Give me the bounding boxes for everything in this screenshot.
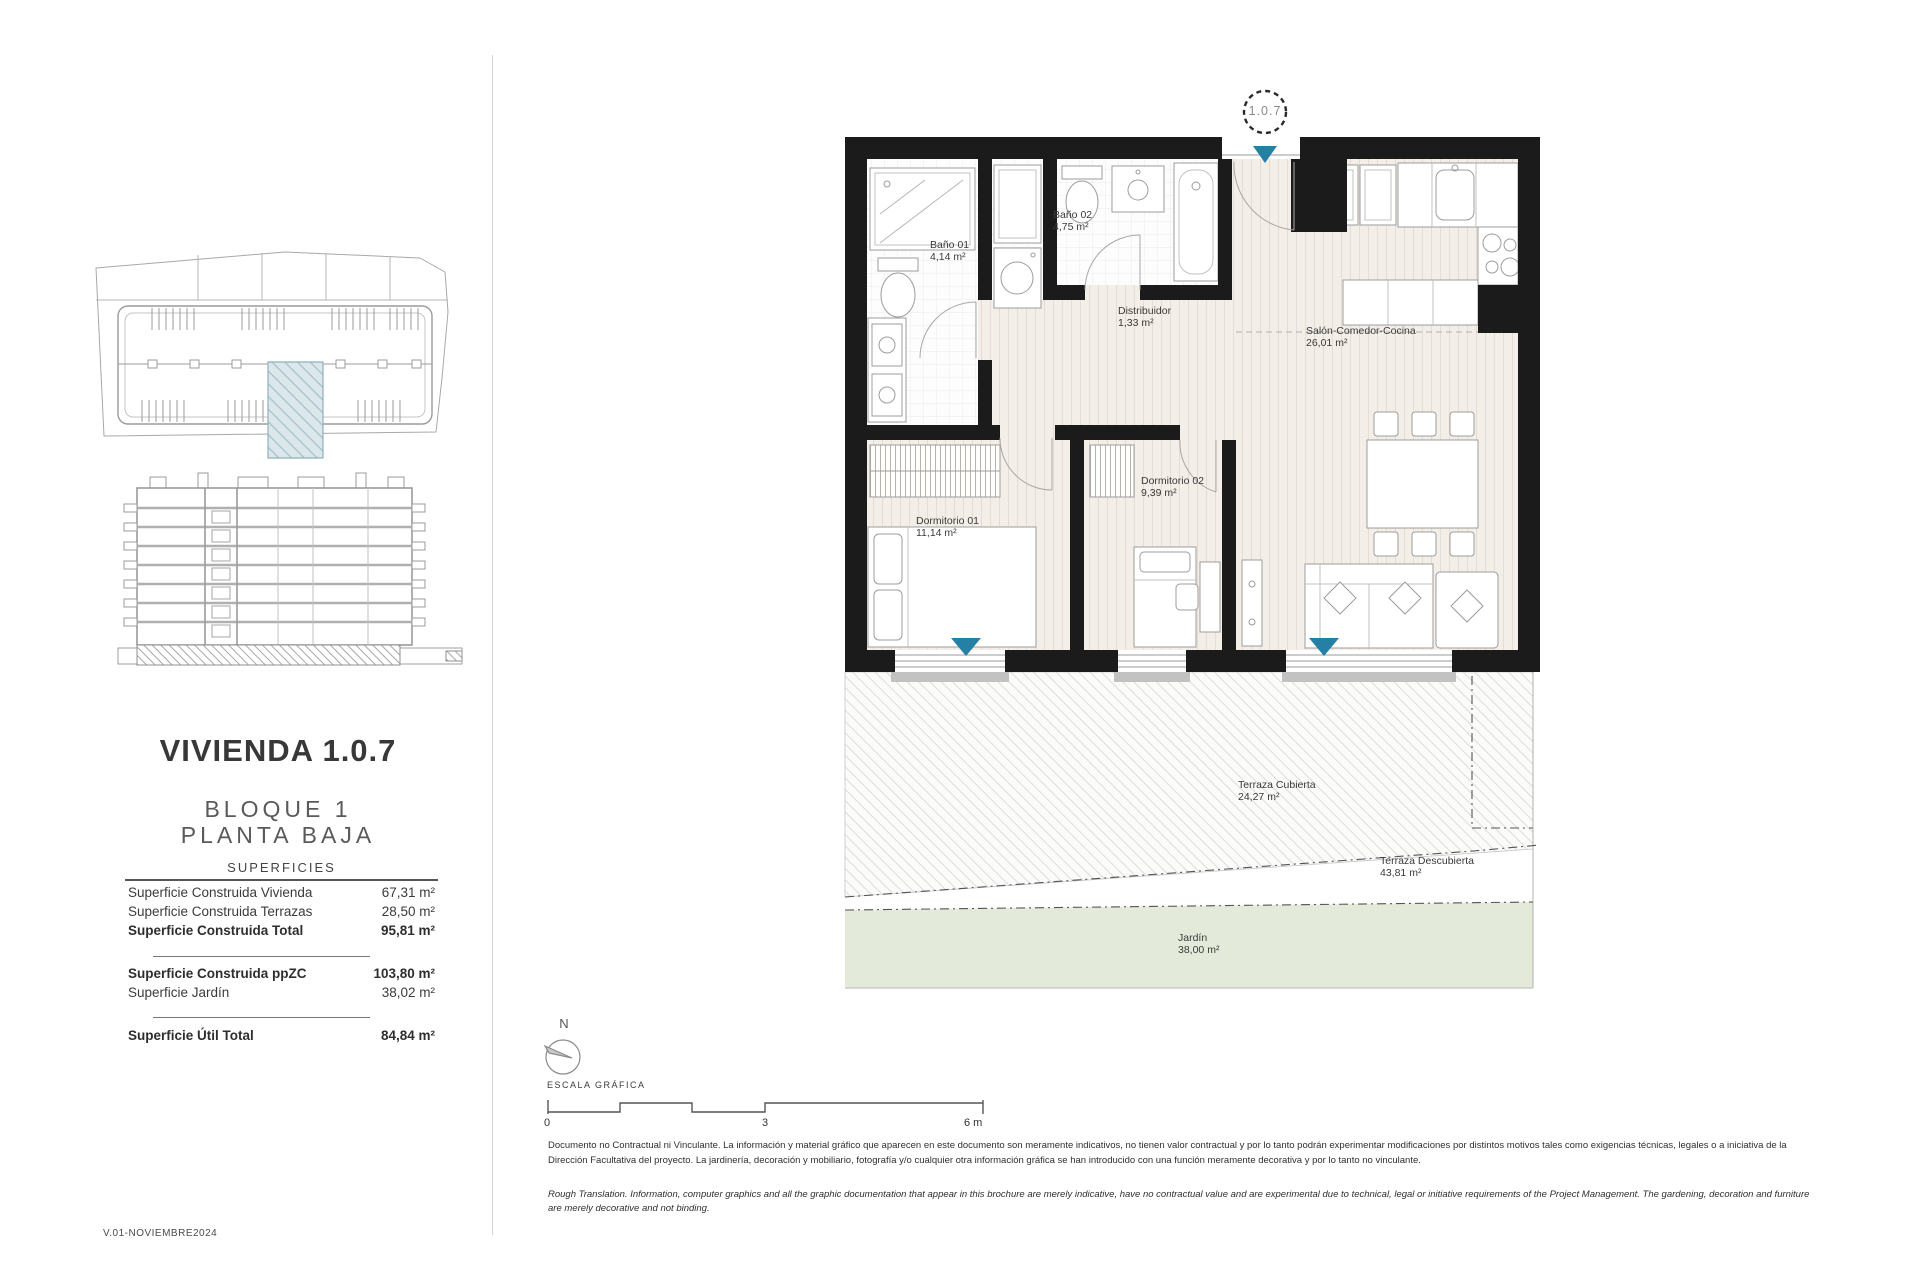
room-name: Dormitorio 02 <box>1141 475 1204 487</box>
plan-sheet: VIVIENDA 1.0.7 BLOQUE 1 PLANTA BAJA SUPE… <box>0 0 1920 1280</box>
unit-marker-label: 1.0.7 <box>1243 104 1287 118</box>
surface-label: Superficie Construida Vivienda <box>128 885 312 904</box>
disclaimer-spanish: Documento no Contractual ni Vinculante. … <box>548 1139 1820 1168</box>
bathtub <box>1174 163 1218 281</box>
surfaces-group-util: Superficie Útil Total 84,84 m² <box>128 1028 435 1047</box>
block-subtitle: BLOQUE 1 <box>110 796 446 823</box>
surface-value: 95,81 m² <box>381 923 435 942</box>
surfaces-rule-2 <box>153 956 370 957</box>
surface-label: Superficie Construida Terrazas <box>128 904 312 923</box>
surface-row: Superficie Jardín 38,02 m² <box>128 985 435 1004</box>
surface-label: Superficie Construida Total <box>128 923 303 942</box>
surface-label: Superficie Jardín <box>128 985 229 1004</box>
scale-tick-6m: 6 m <box>964 1117 982 1129</box>
building-elevation <box>118 473 462 665</box>
room-label-terraza-descubierta: Terraza Descubierta 43,81 m² <box>1380 856 1474 880</box>
laundry-unit <box>994 165 1041 308</box>
surface-row-util-total: Superficie Útil Total 84,84 m² <box>128 1028 435 1047</box>
surfaces-rule-3 <box>153 1017 370 1018</box>
room-area: 4,75 m² <box>1053 222 1092 234</box>
surface-row: Superficie Construida Vivienda 67,31 m² <box>128 885 435 904</box>
room-label-salon: Salón-Comedor-Cocina 26,01 m² <box>1306 326 1416 350</box>
room-name: Terraza Descubierta <box>1380 855 1474 867</box>
room-area: 43,81 m² <box>1380 868 1474 880</box>
room-area: 9,39 m² <box>1141 488 1204 500</box>
surface-value: 84,84 m² <box>381 1028 435 1047</box>
unit-location-highlight <box>268 362 323 458</box>
desk <box>1200 562 1220 632</box>
unit-title: VIVIENDA 1.0.7 <box>110 733 446 769</box>
room-name: Dormitorio 01 <box>916 515 979 527</box>
room-area: 11,14 m² <box>916 528 979 540</box>
room-area: 24,27 m² <box>1238 792 1316 804</box>
sink-2 <box>1112 166 1164 212</box>
panel-divider <box>492 55 493 1235</box>
surface-label: Superficie Útil Total <box>128 1028 254 1047</box>
room-label-dormitorio-02: Dormitorio 02 9,39 m² <box>1141 476 1204 500</box>
room-label-dormitorio-01: Dormitorio 01 11,14 m² <box>916 516 979 540</box>
surface-value: 28,50 m² <box>382 904 435 923</box>
scale-tick-0: 0 <box>544 1117 550 1129</box>
surfaces-group-construida: Superficie Construida Vivienda 67,31 m² … <box>128 885 435 942</box>
room-name: Salón-Comedor-Cocina <box>1306 325 1416 337</box>
scale-tick-3: 3 <box>762 1117 768 1129</box>
double-sink <box>868 318 906 422</box>
version-label: V.01-NOVIEMBRE2024 <box>103 1228 217 1239</box>
north-label: N <box>549 1016 579 1031</box>
desk-chair <box>1176 584 1198 610</box>
scale-caption: ESCALA GRÁFICA <box>547 1080 646 1090</box>
room-label-distribuidor: Distribuidor 1,33 m² <box>1118 306 1171 330</box>
site-key-plan <box>96 252 448 458</box>
north-arrow-icon <box>545 1040 580 1074</box>
room-label-terraza-cubierta: Terraza Cubierta 24,27 m² <box>1238 780 1316 804</box>
sofa <box>1305 564 1498 648</box>
room-area: 4,14 m² <box>930 252 969 264</box>
room-name: Distribuidor <box>1118 305 1171 317</box>
surface-label: Superficie Construida ppZC <box>128 966 307 985</box>
scale-bar <box>548 1100 983 1114</box>
toilet <box>878 258 918 317</box>
dining-set <box>1367 412 1478 556</box>
room-name: Jardín <box>1178 932 1207 944</box>
surface-row-total: Superficie Construida Total 95,81 m² <box>128 923 435 942</box>
room-area: 26,01 m² <box>1306 338 1416 350</box>
surface-value: 67,31 m² <box>382 885 435 904</box>
surface-value: 38,02 m² <box>382 985 435 1004</box>
surfaces-header: SUPERFICIES <box>125 860 438 875</box>
floor-subtitle: PLANTA BAJA <box>110 822 446 849</box>
room-area: 1,33 m² <box>1118 318 1171 330</box>
surfaces-group-ppzc: Superficie Construida ppZC 103,80 m² Sup… <box>128 966 435 1004</box>
room-name: Baño 01 <box>930 239 969 251</box>
room-name: Baño 02 <box>1053 209 1092 221</box>
surface-row-ppzc: Superficie Construida ppZC 103,80 m² <box>128 966 435 985</box>
wardrobe-2 <box>1090 445 1134 497</box>
room-label-bano-01: Baño 01 4,14 m² <box>930 240 969 264</box>
tv-unit <box>1242 560 1262 646</box>
shower <box>870 168 975 250</box>
room-label-jardin: Jardín 38,00 m² <box>1178 933 1219 957</box>
surface-value: 103,80 m² <box>373 966 435 985</box>
bed-1 <box>868 527 1036 647</box>
surfaces-rule <box>125 879 438 881</box>
kitchen-island <box>1343 280 1478 325</box>
disclaimer-english: Rough Translation. Information, computer… <box>548 1188 1820 1217</box>
surface-row: Superficie Construida Terrazas 28,50 m² <box>128 904 435 923</box>
room-area: 38,00 m² <box>1178 945 1219 957</box>
sheet-drawing <box>0 0 1920 1280</box>
room-label-bano-02: Baño 02 4,75 m² <box>1053 210 1092 234</box>
ground-floor-highlight <box>137 645 400 665</box>
room-name: Terraza Cubierta <box>1238 779 1316 791</box>
